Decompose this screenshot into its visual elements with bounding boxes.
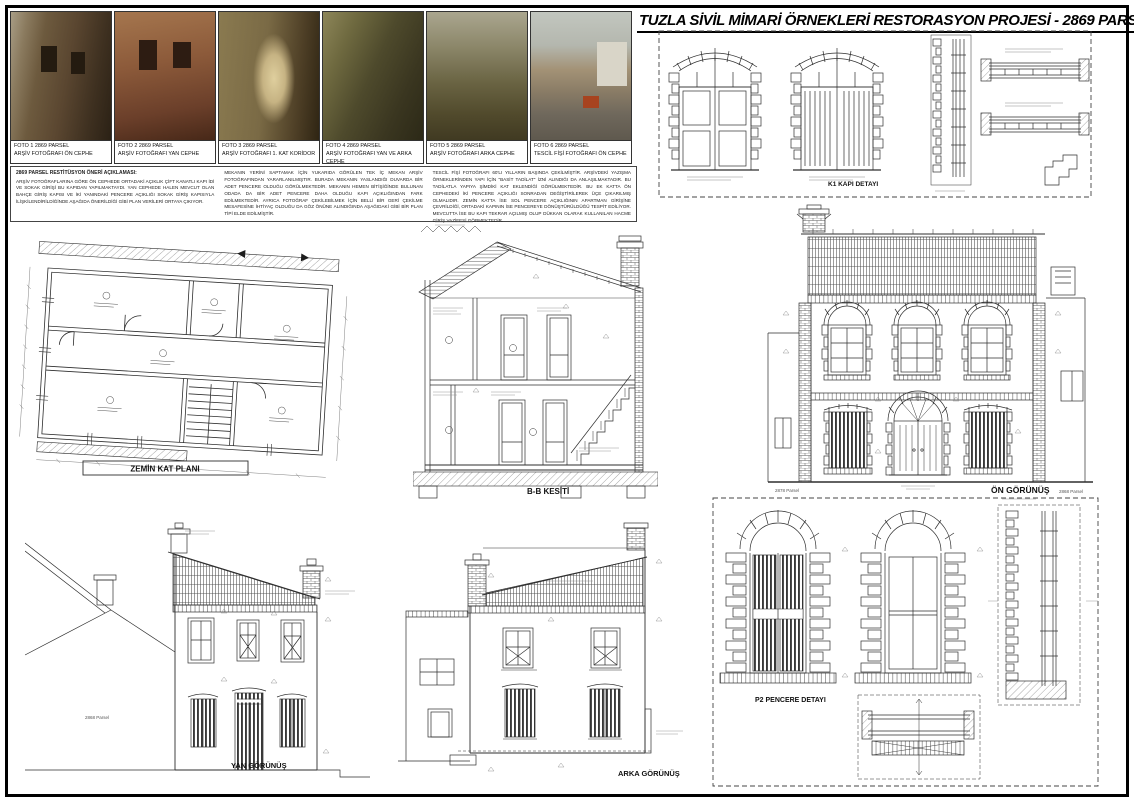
photo-3-caption-line2: ARŞİV FOTOĞRAFI 1. KAT KORİDOR (222, 151, 316, 159)
description-col-3: TESCİL FİŞİ FOTOĞRAFI 60'LI YILLARIN BAŞ… (433, 170, 631, 218)
section-label: B-B KESİTİ (527, 487, 569, 496)
floor-plan-svg: ZEMİN KAT PLANI (8, 228, 368, 486)
description-text-1: ARŞİV FOTOĞRAFLARINA GÖRE ÖN CEPHEDE ORT… (16, 179, 214, 207)
rear-elevation-svg: ARKA GÖRÜNÜŞ (398, 521, 698, 793)
photo-6-caption-line2: TESCİL FİŞİ FOTOĞRAFI ÖN CEPHE (534, 151, 628, 159)
side-elevation-svg: 2868 Parsel YAN GÖRÜNÜŞ (25, 521, 383, 787)
photo-4-caption-line2: ARŞİV FOTOĞRAFI YAN VE ARKA CEPHE (326, 151, 420, 167)
side-elevation-drawing: 2868 Parsel YAN GÖRÜNÜŞ (25, 521, 383, 792)
photo-4-side-rear (323, 12, 423, 140)
photo-cell-3: FOTO 3 2869 PARSELARŞİV FOTOĞRAFI 1. KAT… (218, 11, 320, 164)
description-text-3: TESCİL FİŞİ FOTOĞRAFI 60'LI YILLARIN BAŞ… (433, 170, 631, 223)
photo-5-caption-line2: ARŞİV FOTOĞRAFI ARKA CEPHE (430, 151, 524, 159)
photo-2-caption-line1: FOTO 2 2869 PARSEL (118, 143, 212, 151)
photo-cell-1: FOTO 1 2869 PARSELARŞİV FOTOĞRAFI ÖN CEP… (10, 11, 112, 164)
floor-plan-drawing: ZEMİN KAT PLANI (8, 228, 368, 491)
window-detail-label: P2 PENCERE DETAYI (755, 697, 826, 704)
drawing-sheet: FOTO 1 2869 PARSELARŞİV FOTOĞRAFI ÖN CEP… (0, 0, 1134, 802)
rear-elevation-drawing: ARKA GÖRÜNÜŞ (398, 521, 698, 798)
window-detail-drawing: P2 PENCERE DETAYI (706, 491, 1106, 798)
photo-2-caption-line2: ARŞİV FOTOĞRAFI YAN CEPHE (118, 151, 212, 159)
section-drawing: B-B KESİTİ (413, 220, 658, 510)
description-heading: 2869 PARSEL RESTİTÜSYON ÖNERİ AÇIKLAMASI… (16, 170, 214, 178)
photo-1-caption-line2: ARŞİV FOTOĞRAFI ÖN CEPHE (14, 151, 108, 159)
photo-6-caption-line1: FOTO 6 2869 PARSEL (534, 143, 628, 151)
photo-1-front-facade (11, 12, 111, 140)
photo-2-side-facade (115, 12, 215, 140)
photo-cell-2: FOTO 2 2869 PARSELARŞİV FOTOĞRAFI YAN CE… (114, 11, 216, 164)
side-neighbor-parcel-label: 2868 Parsel (85, 715, 109, 720)
photo-5-caption-line1: FOTO 5 2869 PARSEL (430, 143, 524, 151)
door-detail-drawing: K1 KAPI DETAYI (653, 25, 1100, 210)
front-elevation-svg: 2878 Parsel ÖN GÖRÜNÜŞ 2868 Parsel (763, 203, 1098, 495)
description-text-2: MEKANIN YERİNİ SAPTAMAK İÇİN YUKARIDA GÖ… (224, 170, 422, 216)
rear-elevation-label: ARKA GÖRÜNÜŞ (618, 769, 680, 778)
photo-cell-5: FOTO 5 2869 PARSELARŞİV FOTOĞRAFI ARKA C… (426, 11, 528, 164)
description-col-2: MEKANIN YERİNİ SAPTAMAK İÇİN YUKARIDA GÖ… (224, 170, 422, 218)
door-detail-label: K1 KAPI DETAYI (828, 181, 878, 188)
photo-1-caption-line1: FOTO 1 2869 PARSEL (14, 143, 108, 151)
photo-5-rear-facade (427, 12, 527, 140)
window-detail-svg: P2 PENCERE DETAYI (706, 491, 1106, 793)
floor-plan-label: ZEMİN KAT PLANI (130, 465, 199, 474)
photo-4-caption-line1: FOTO 4 2869 PARSEL (326, 143, 420, 151)
side-elevation-label: YAN GÖRÜNÜŞ (231, 761, 287, 770)
photo-3-caption-line1: FOTO 3 2869 PARSEL (222, 143, 316, 151)
photo-3-corridor (219, 12, 319, 140)
photo-strip: FOTO 1 2869 PARSELARŞİV FOTOĞRAFI ÖN CEP… (10, 11, 632, 164)
photo-cell-6: FOTO 6 2869 PARSELTESCİL FİŞİ FOTOĞRAFI … (530, 11, 632, 164)
door-detail-svg: K1 KAPI DETAYI (653, 25, 1100, 205)
section-svg: B-B KESİTİ (413, 220, 658, 505)
description-block: 2869 PARSEL RESTİTÜSYON ÖNERİ AÇIKLAMASI… (10, 166, 637, 222)
photo-cell-4: FOTO 4 2869 PARSELARŞİV FOTOĞRAFI YAN VE… (322, 11, 424, 164)
front-elevation-drawing: 2878 Parsel ÖN GÖRÜNÜŞ 2868 Parsel (763, 203, 1098, 500)
description-col-1: 2869 PARSEL RESTİTÜSYON ÖNERİ AÇIKLAMASI… (16, 170, 214, 218)
photo-6-street-view (531, 12, 631, 140)
